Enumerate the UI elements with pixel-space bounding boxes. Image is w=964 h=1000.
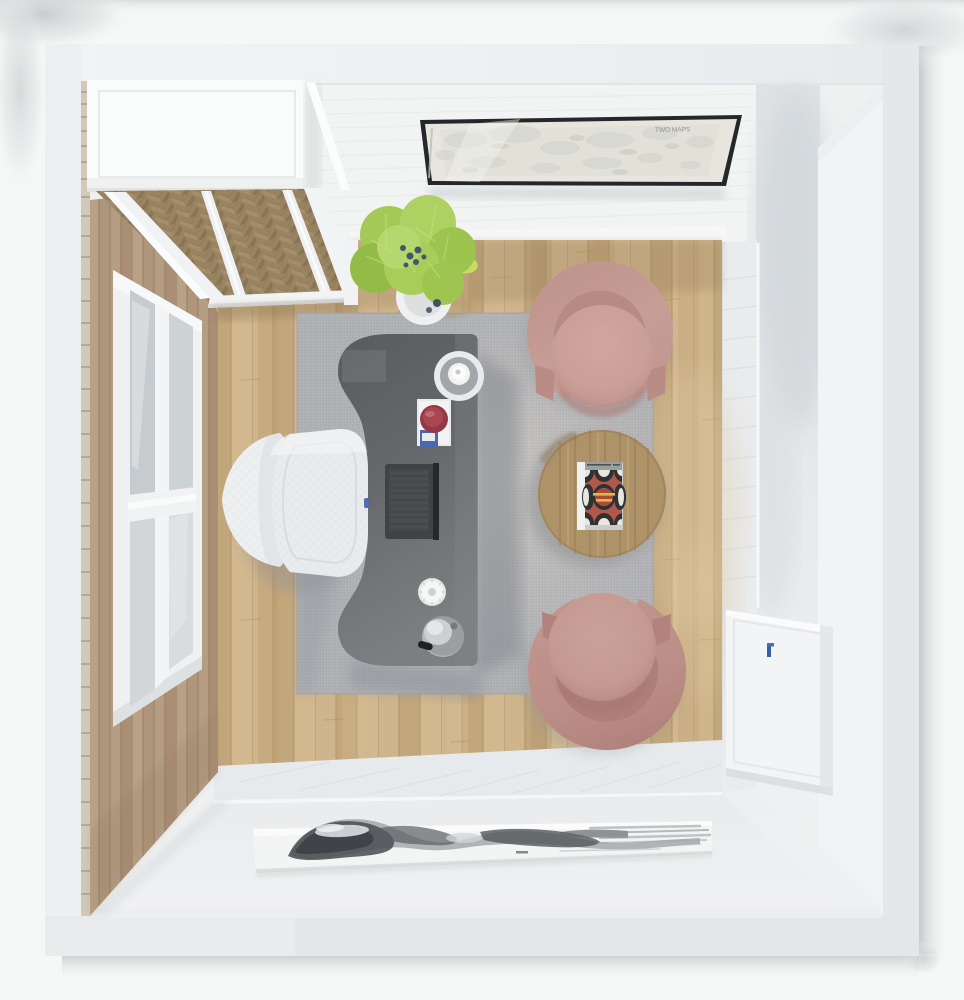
svg-text:TWO MAPS: TWO MAPS	[655, 126, 691, 134]
